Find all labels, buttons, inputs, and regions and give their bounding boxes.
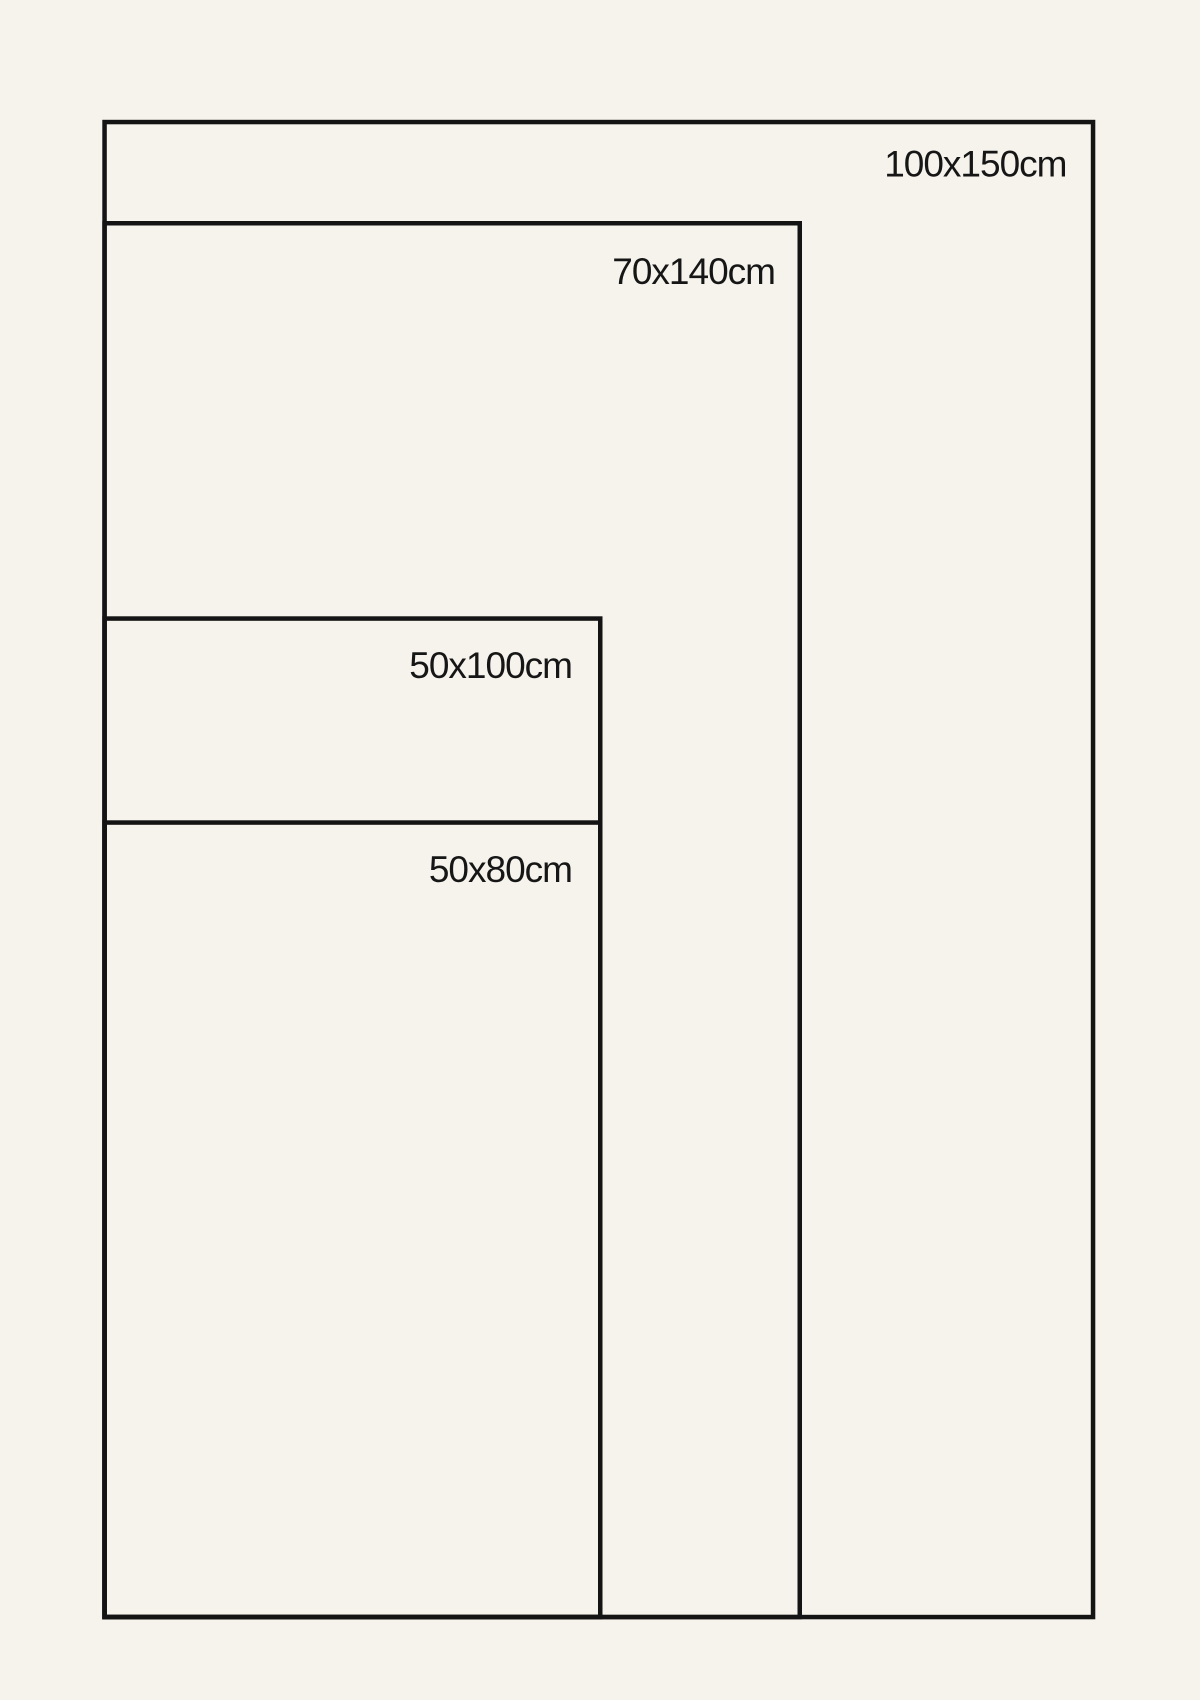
svg-text:50x80cm: 50x80cm (429, 849, 572, 890)
svg-text:50x100cm: 50x100cm (409, 645, 572, 686)
svg-text:100x150cm: 100x150cm (884, 144, 1066, 185)
svg-text:70x140cm: 70x140cm (612, 251, 775, 292)
